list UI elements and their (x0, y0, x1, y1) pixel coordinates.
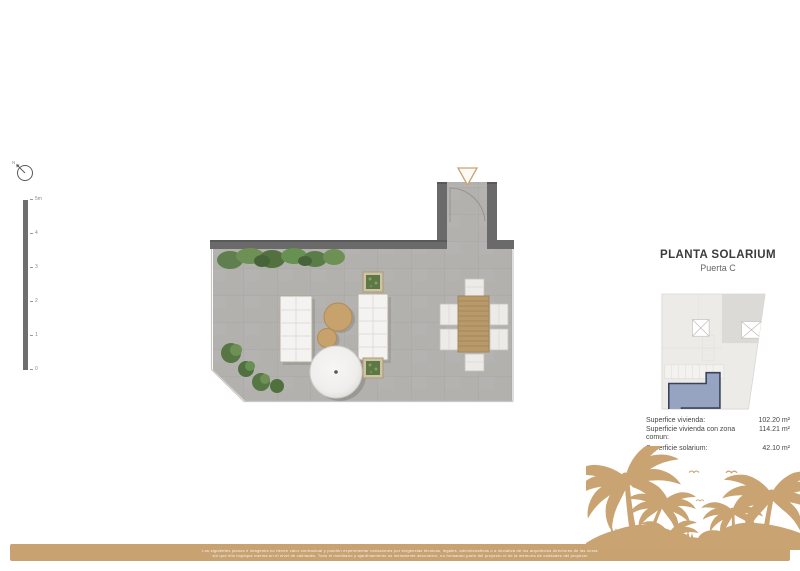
stair-shaft-icon (742, 322, 762, 339)
bird-icon (726, 471, 737, 473)
north-compass-icon: N (9, 156, 39, 186)
page-title: PLANTA SOLARIUM (616, 249, 800, 261)
scale-bar-line (23, 200, 28, 370)
area-row: Superfice vivienda: 102.20 m² (646, 417, 790, 426)
palm-trees-illustration (586, 446, 800, 550)
page-subtitle: Puerta C (616, 263, 800, 273)
solarium-floor-plan (210, 160, 515, 406)
stair-shaft-icon (692, 320, 709, 337)
planter-box (363, 358, 383, 378)
key-plan (658, 292, 774, 412)
corridor-floor (447, 182, 487, 244)
disclaimer-line-2: sin que ello implique merma en el nivel … (212, 553, 587, 558)
area-row: Superficie vivienda con zona comun: 114.… (646, 426, 790, 443)
planter-box (363, 272, 383, 292)
sun-lounger (280, 296, 315, 365)
north-label: N (12, 160, 15, 165)
scale-bar: 5m 4 3 2 1 0 (23, 196, 49, 376)
sun-lounger (358, 294, 391, 363)
bird-icon (689, 471, 699, 473)
bird-icon (696, 500, 704, 501)
dining-table (458, 296, 489, 352)
